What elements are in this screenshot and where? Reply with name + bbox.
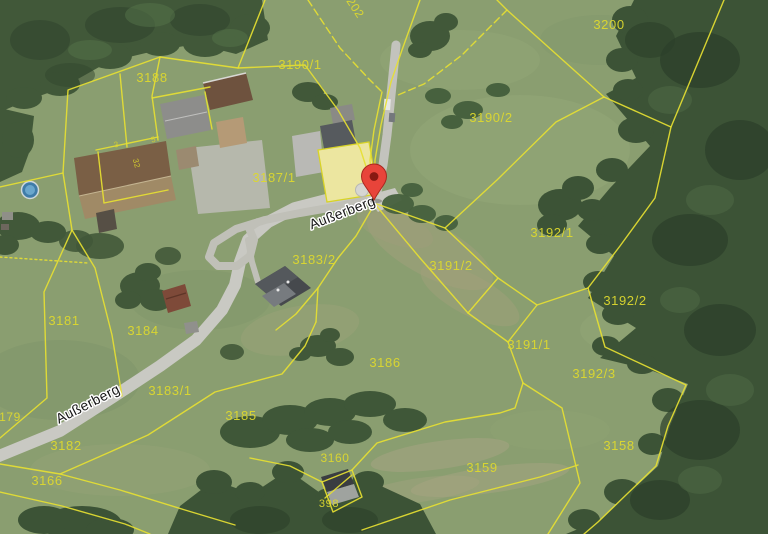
- farm-shed-dark: [96, 209, 117, 233]
- parcel-label: 3192/1: [530, 225, 573, 240]
- parcel-label: 3192/2: [603, 293, 646, 308]
- parcel-label: 3190/2: [469, 110, 512, 125]
- marker-dot: [370, 172, 379, 181]
- gray-hut: [184, 321, 199, 334]
- parcel-label: 3191/1: [507, 337, 550, 352]
- parcel-label: 3186: [369, 355, 400, 370]
- parcel-label: 3159: [466, 460, 497, 475]
- vehicle: [389, 113, 396, 122]
- parcel-label: 3185: [225, 408, 256, 423]
- parcel-label: 3183/1: [148, 383, 191, 398]
- parcel-label: 3183/2: [292, 252, 335, 267]
- parcel-label: 398: [319, 498, 339, 510]
- parcel-label: 3200: [593, 17, 624, 32]
- parcel-label: 3190/1: [278, 57, 321, 72]
- farm-shed-tan: [216, 117, 247, 148]
- parcel-label: 179: [0, 410, 21, 424]
- parcel-label: 3181: [48, 313, 79, 328]
- parcel-label: 3182: [50, 438, 81, 453]
- map-viewport[interactable]: 20232003190/131883190/23187/13192/13183/…: [0, 0, 768, 534]
- parcel-label: 3191/2: [429, 258, 472, 273]
- parcel-label: 3188: [136, 70, 167, 85]
- parcel-label: 3187/1: [252, 170, 295, 185]
- parcel-label: 3184: [127, 323, 158, 338]
- marker-shadow: [370, 199, 382, 203]
- parcel-label: 3166: [31, 473, 62, 488]
- parcel-label: 3158: [603, 438, 634, 453]
- parcel-label: 3160: [320, 451, 349, 465]
- map-canvas[interactable]: 20232003190/131883190/23187/13192/13183/…: [0, 0, 768, 534]
- parcel-label: 3192/3: [572, 366, 615, 381]
